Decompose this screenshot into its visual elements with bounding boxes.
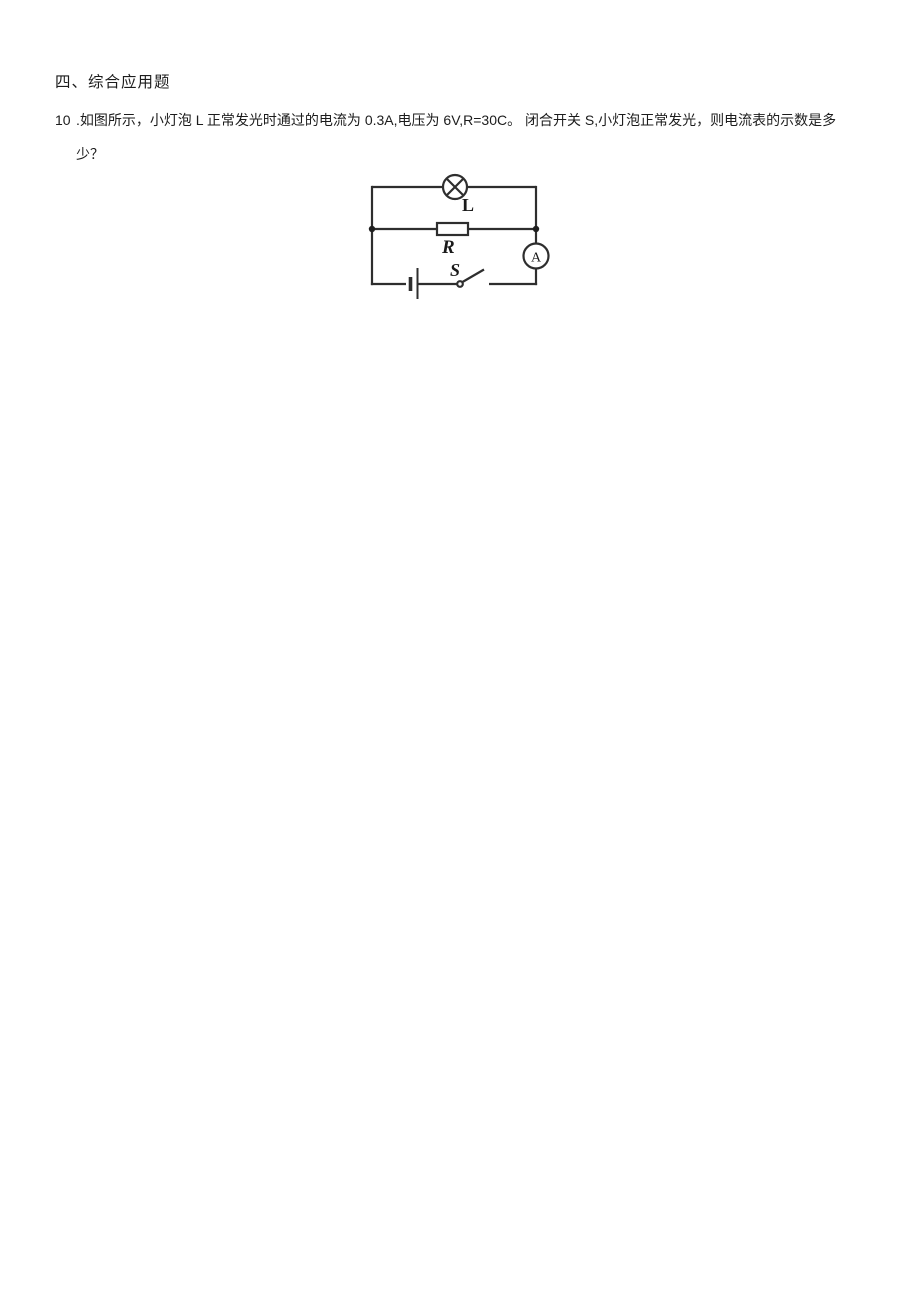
junction-dot-right	[533, 226, 539, 232]
switch-label: S	[450, 260, 460, 280]
junction-dot-left	[369, 226, 375, 232]
document-page: 四、综合应用题 10 .如图所示，小灯泡 L 正常发光时通过的电流为 0.3A,…	[0, 0, 920, 1301]
section-heading: 四、综合应用题	[55, 70, 171, 92]
question-number: 10	[55, 112, 71, 128]
question-text-line-1: .如图所示，小灯泡 L 正常发光时通过的电流为 0.3A,电压为 6V,R=30…	[76, 112, 836, 129]
lamp-label: L	[462, 195, 474, 215]
battery-icon	[411, 268, 418, 299]
question-text-line-2: 少？	[76, 146, 104, 163]
ammeter-icon: A	[524, 244, 549, 269]
circuit-diagram: A L R S	[358, 170, 564, 306]
switch-icon	[457, 270, 484, 287]
ammeter-label: A	[531, 251, 542, 266]
resistor-label: R	[441, 237, 455, 258]
resistor-icon	[437, 223, 468, 235]
